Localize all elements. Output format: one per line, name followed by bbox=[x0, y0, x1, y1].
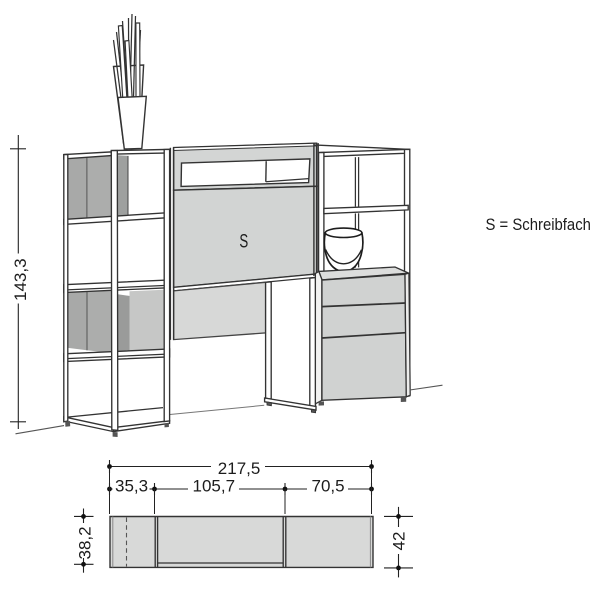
svg-text:S = Schreibfach: S = Schreibfach bbox=[486, 216, 591, 234]
svg-text:217,5: 217,5 bbox=[218, 459, 261, 478]
svg-text:70,5: 70,5 bbox=[312, 477, 345, 496]
svg-text:35,3: 35,3 bbox=[115, 477, 148, 496]
svg-text:105,7: 105,7 bbox=[193, 477, 236, 496]
svg-text:42: 42 bbox=[390, 532, 409, 551]
svg-text:38,2: 38,2 bbox=[76, 526, 95, 559]
svg-text:143,3: 143,3 bbox=[11, 258, 30, 301]
svg-text:S: S bbox=[239, 230, 248, 252]
